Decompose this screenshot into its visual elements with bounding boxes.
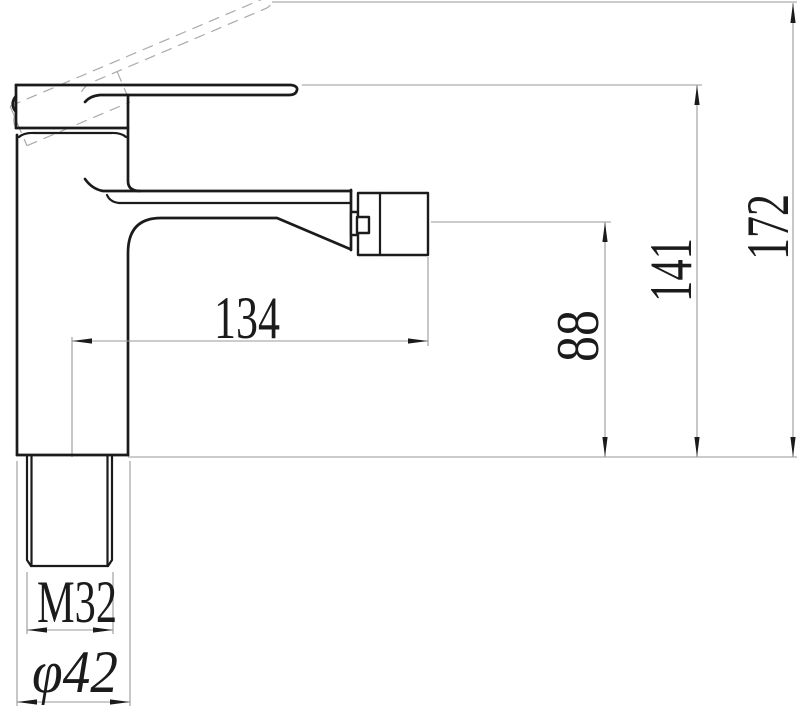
raised-lever-base-bottom [27,102,130,146]
body-right-edge-upper [128,95,140,191]
dimension-lever-height: 141 [638,85,704,457]
arrowhead-172-bottom [790,437,795,457]
dimension-spout-reach: 134 [72,285,428,351]
drawing-canvas: 134 88 141 172 M32 φ42 [0,0,800,712]
lever-handle [13,85,297,128]
faucet-technical-drawing: 134 88 141 172 M32 φ42 [0,0,800,712]
dim-134-label: 134 [214,285,280,351]
raised-lever-left-edge [10,106,27,146]
dim-88-label: 88 [545,310,611,362]
arrowhead-134-left [72,338,92,343]
arrowhead-172-top [790,3,795,23]
dim-m32-label: M32 [37,569,117,635]
spout-inner-edge [107,195,351,203]
arrowhead-141-bottom [694,437,699,457]
arrowhead-134-right [408,338,428,343]
arrowhead-88-top [602,222,607,242]
dimension-total-height: 172 [735,3,800,457]
raised-lever-arm [10,0,275,122]
threaded-shank [27,456,112,566]
lever-arm [16,85,297,102]
dimension-base-diameter: φ42 [17,639,130,705]
lever-raised-dashed-outline [7,0,286,147]
dim-d42-label: φ42 [32,639,118,705]
dim-172-label: 172 [735,194,800,260]
dim-141-label: 141 [638,238,704,302]
body-top-seam [19,133,126,137]
faucet-body [17,95,350,455]
spout [85,179,351,250]
dimension-spout-height: 88 [545,222,611,457]
spout-top-edge [85,179,351,191]
dimension-thread: M32 [27,569,117,635]
arrowhead-88-bottom [602,437,607,457]
arrowhead-141-top [694,85,699,105]
extension-lines [17,2,797,706]
aerator-head [351,193,428,255]
aerator-connector-inner [357,217,369,233]
